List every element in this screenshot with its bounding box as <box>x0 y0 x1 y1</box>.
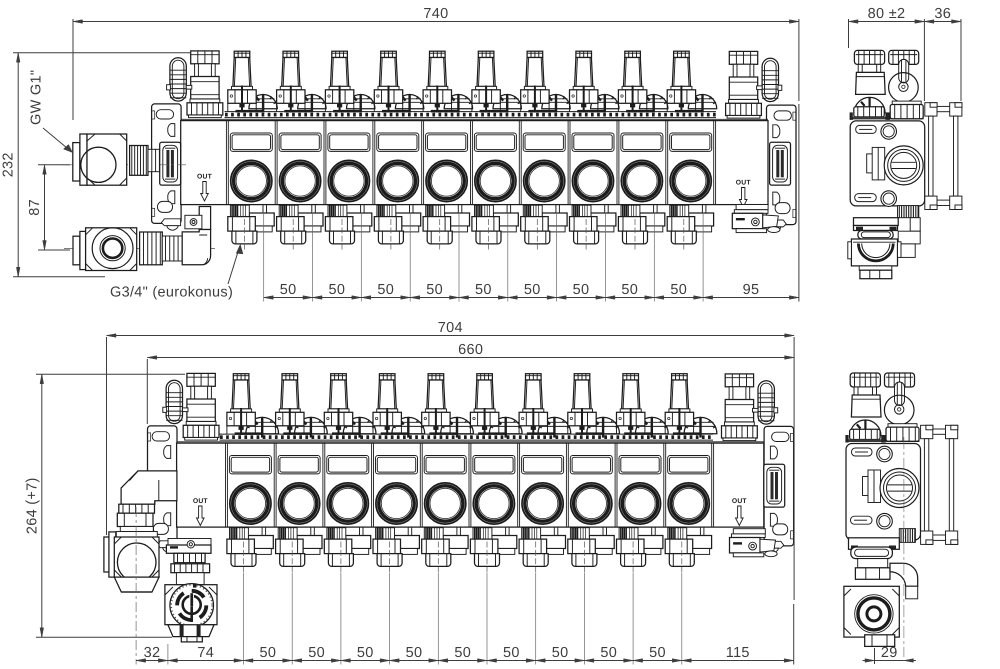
svg-text:50: 50 <box>260 645 277 661</box>
svg-text:50: 50 <box>524 282 541 298</box>
svg-text:GW G1": GW G1" <box>29 70 45 125</box>
svg-text:50: 50 <box>377 282 394 298</box>
svg-text:50: 50 <box>357 645 374 661</box>
svg-text:87: 87 <box>27 199 43 216</box>
svg-text:50: 50 <box>406 645 423 661</box>
svg-text:80 ±2: 80 ±2 <box>868 6 906 22</box>
svg-text:50: 50 <box>475 282 492 298</box>
svg-text:36: 36 <box>934 6 951 22</box>
svg-text:50: 50 <box>329 282 346 298</box>
svg-text:50: 50 <box>280 282 297 298</box>
svg-text:50: 50 <box>621 282 638 298</box>
svg-text:660: 660 <box>458 342 483 358</box>
svg-text:G3/4" (eurokonus): G3/4" (eurokonus) <box>110 285 233 301</box>
svg-text:50: 50 <box>454 645 471 661</box>
svg-text:50: 50 <box>649 645 666 661</box>
svg-text:32: 32 <box>144 645 161 661</box>
svg-text:232: 232 <box>1 152 17 177</box>
svg-text:50: 50 <box>426 282 443 298</box>
svg-text:115: 115 <box>726 645 750 661</box>
svg-text:264 (+7): 264 (+7) <box>24 477 40 534</box>
svg-text:50: 50 <box>552 645 569 661</box>
svg-text:95: 95 <box>743 282 760 298</box>
svg-text:50: 50 <box>308 645 325 661</box>
svg-text:50: 50 <box>503 645 520 661</box>
svg-text:740: 740 <box>423 6 448 22</box>
svg-text:704: 704 <box>438 320 463 336</box>
svg-text:29: 29 <box>881 645 898 661</box>
svg-text:74: 74 <box>197 645 214 661</box>
svg-text:50: 50 <box>600 645 617 661</box>
svg-text:50: 50 <box>573 282 590 298</box>
svg-text:50: 50 <box>670 282 687 298</box>
